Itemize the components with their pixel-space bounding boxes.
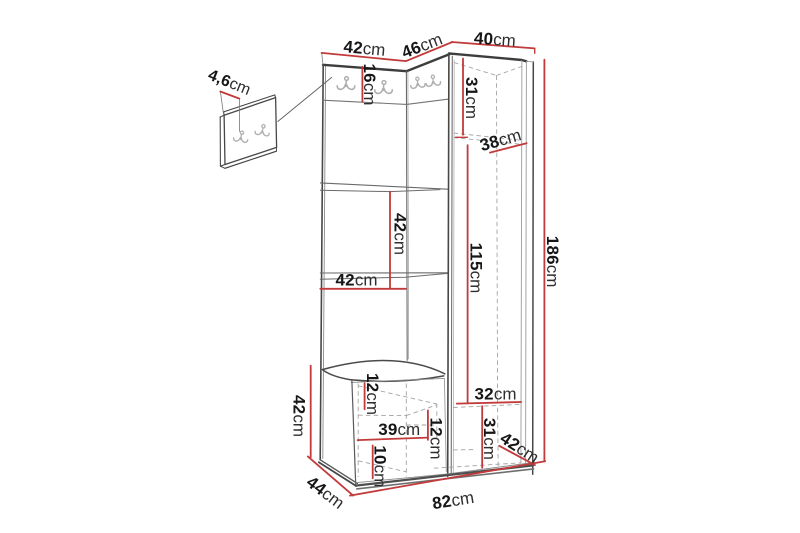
svg-text:186cm: 186cm <box>543 236 562 288</box>
svg-text:32cm: 32cm <box>475 385 517 404</box>
svg-text:10cm: 10cm <box>371 445 390 487</box>
svg-text:40cm: 40cm <box>473 29 516 51</box>
svg-text:12cm: 12cm <box>427 418 446 460</box>
svg-text:42cm: 42cm <box>390 213 409 255</box>
svg-text:12cm: 12cm <box>363 373 382 415</box>
svg-text:42cm: 42cm <box>290 395 309 437</box>
svg-text:16cm: 16cm <box>360 64 379 106</box>
svg-text:31cm: 31cm <box>462 77 481 119</box>
svg-text:42cm: 42cm <box>336 271 378 290</box>
svg-text:39cm: 39cm <box>378 420 420 439</box>
svg-text:115cm: 115cm <box>466 243 485 294</box>
svg-text:31cm: 31cm <box>480 418 499 460</box>
svg-text:42cm: 42cm <box>343 37 386 60</box>
